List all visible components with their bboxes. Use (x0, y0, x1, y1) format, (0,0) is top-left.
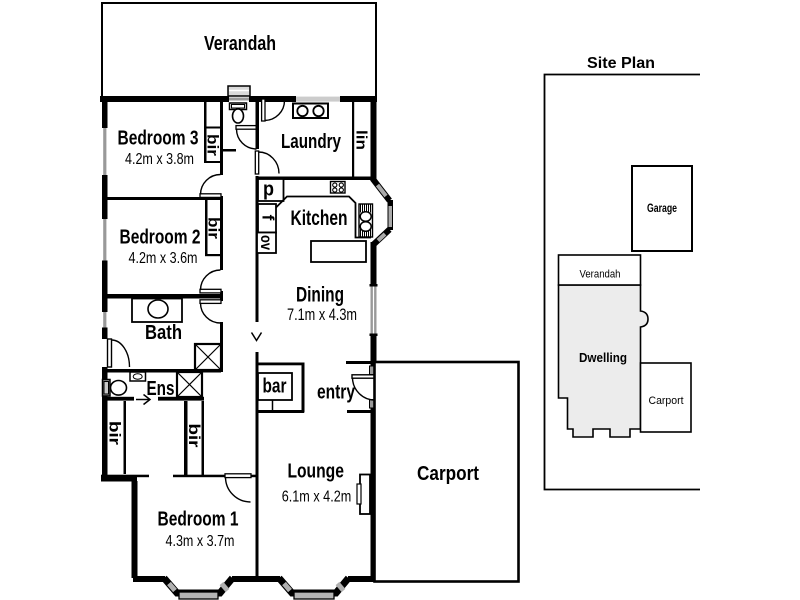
svg-text:4.2m x 3.8m: 4.2m x 3.8m (125, 151, 194, 168)
svg-text:Lounge: Lounge (287, 461, 344, 483)
svg-text:Dining: Dining (296, 284, 344, 307)
svg-text:bir: bir (204, 134, 221, 156)
svg-text:Carport: Carport (417, 463, 479, 485)
svg-text:bir: bir (205, 217, 222, 239)
svg-text:Laundry: Laundry (281, 131, 342, 153)
svg-text:entry: entry (317, 382, 356, 404)
svg-text:ov: ov (257, 235, 274, 250)
svg-text:bir: bir (185, 424, 202, 448)
svg-text:Verandah: Verandah (580, 269, 621, 281)
svg-text:6.1m x 4.2m: 6.1m x 4.2m (282, 489, 352, 506)
svg-text:bir: bir (106, 421, 123, 445)
svg-text:p: p (263, 179, 274, 201)
svg-text:Kitchen: Kitchen (291, 207, 348, 230)
svg-text:4.3m x 3.7m: 4.3m x 3.7m (166, 533, 235, 550)
svg-text:4.2m x 3.6m: 4.2m x 3.6m (129, 250, 198, 267)
svg-text:Dwelling: Dwelling (579, 350, 627, 365)
svg-text:bar: bar (263, 376, 287, 398)
svg-text:f: f (259, 215, 278, 221)
svg-text:Ens: Ens (147, 378, 175, 400)
svg-text:Bedroom 2: Bedroom 2 (120, 227, 201, 249)
svg-text:Site Plan: Site Plan (587, 55, 655, 72)
svg-text:Bedroom 3: Bedroom 3 (118, 128, 199, 150)
svg-text:Carport: Carport (649, 395, 684, 407)
svg-text:Verandah: Verandah (204, 33, 276, 55)
svg-text:Bath: Bath (145, 322, 182, 344)
svg-text:Garage: Garage (647, 201, 677, 215)
svg-text:Bedroom 1: Bedroom 1 (158, 509, 239, 531)
svg-text:lin: lin (353, 130, 370, 150)
svg-text:7.1m x 4.3m: 7.1m x 4.3m (287, 306, 357, 324)
